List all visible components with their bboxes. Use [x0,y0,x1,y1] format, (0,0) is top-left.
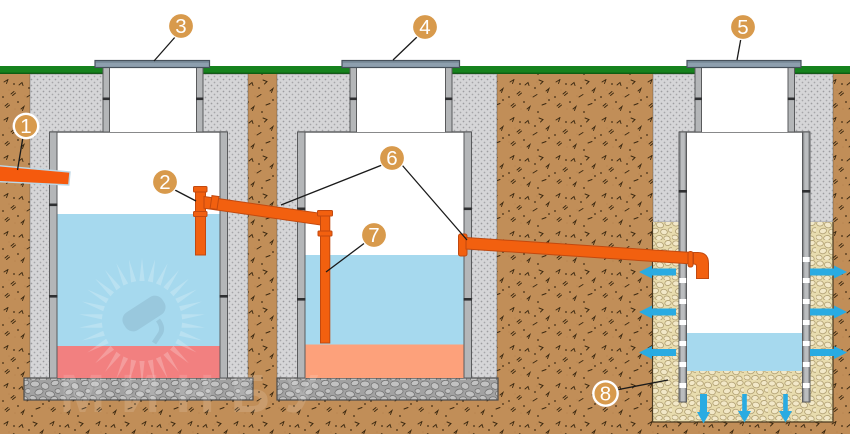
svg-text:3: 3 [175,15,186,38]
svg-text:8: 8 [600,383,611,406]
svg-text:6: 6 [386,147,397,170]
svg-text:5: 5 [737,16,748,39]
svg-text:МИНБУ: МИНБУ [60,364,334,424]
svg-text:2: 2 [159,171,170,194]
svg-text:7: 7 [368,224,379,247]
svg-text:4: 4 [419,16,430,39]
svg-text:1: 1 [20,115,31,138]
